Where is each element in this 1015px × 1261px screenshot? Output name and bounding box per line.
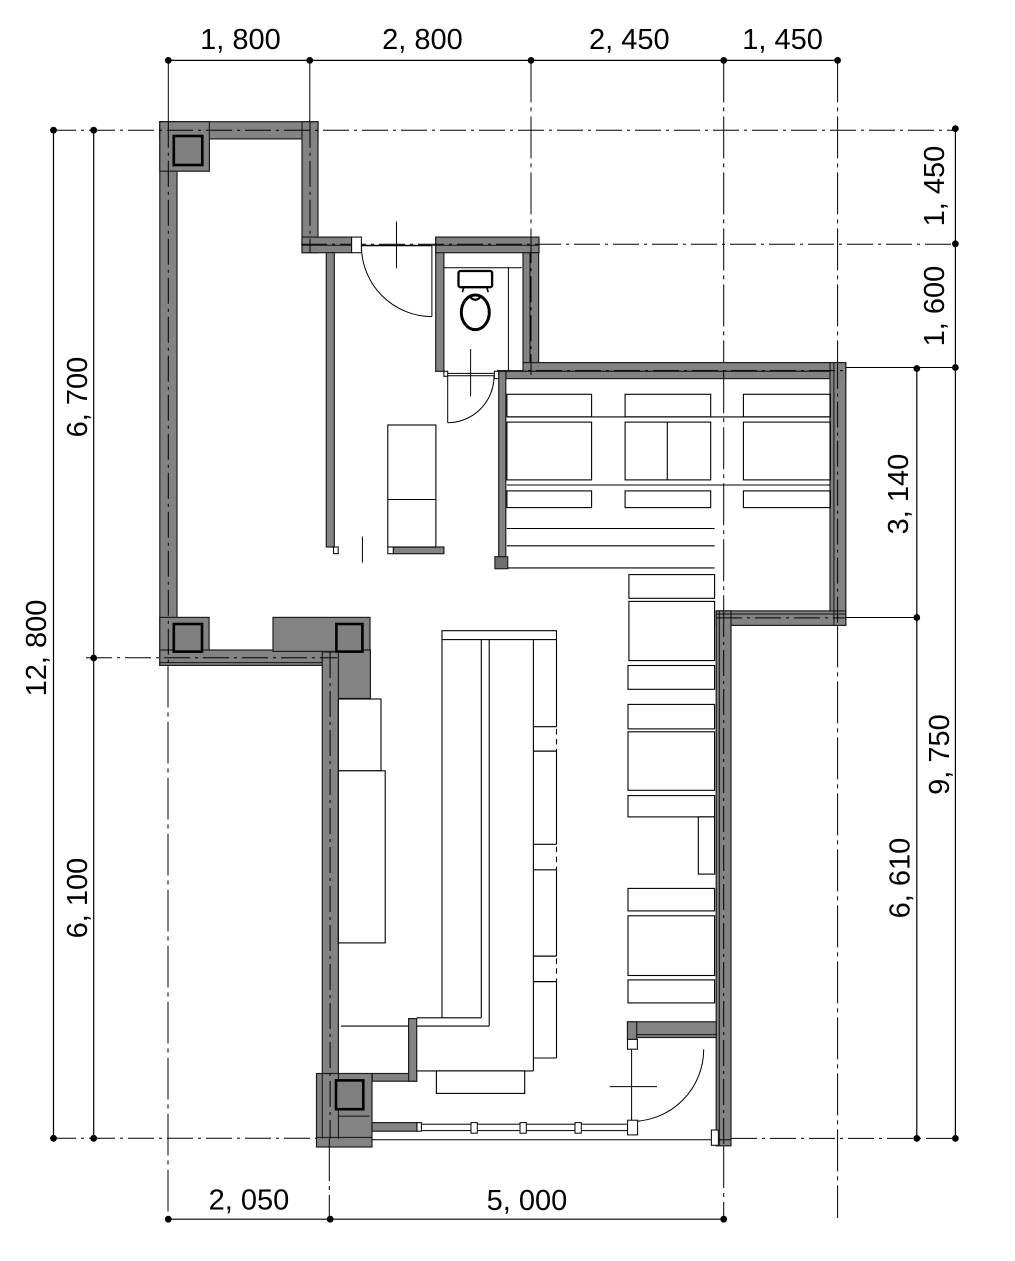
- svg-text:2, 800: 2, 800: [382, 24, 463, 56]
- svg-text:6, 700: 6, 700: [62, 357, 94, 438]
- svg-text:1, 450: 1, 450: [919, 146, 951, 227]
- svg-text:6, 610: 6, 610: [885, 838, 917, 919]
- svg-text:1, 450: 1, 450: [742, 24, 823, 56]
- svg-text:2, 050: 2, 050: [209, 1185, 290, 1217]
- svg-text:3, 140: 3, 140: [883, 454, 915, 535]
- svg-text:1, 600: 1, 600: [919, 266, 951, 347]
- svg-text:9, 750: 9, 750: [924, 714, 956, 795]
- svg-text:6, 100: 6, 100: [62, 858, 94, 939]
- svg-text:12, 800: 12, 800: [21, 600, 53, 697]
- svg-text:2, 450: 2, 450: [589, 24, 670, 56]
- svg-text:1, 800: 1, 800: [200, 24, 281, 56]
- svg-text:5, 000: 5, 000: [487, 1185, 568, 1217]
